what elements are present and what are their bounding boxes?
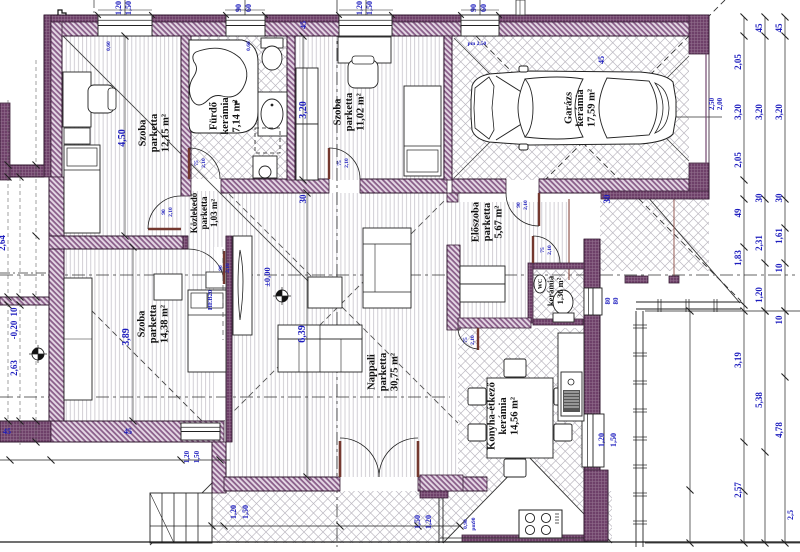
svg-text:1,20: 1,20	[183, 450, 191, 463]
svg-text:Előszoba: Előszoba	[471, 201, 482, 242]
svg-text:10: 10	[774, 315, 784, 325]
svg-text:1,50: 1,50	[413, 515, 422, 529]
svg-text:90: 90	[218, 265, 224, 271]
svg-text:7,14 m²: 7,14 m²	[232, 100, 243, 133]
svg-text:10: 10	[774, 263, 784, 273]
svg-text:45: 45	[3, 427, 11, 436]
svg-text:6,39: 6,39	[297, 325, 308, 343]
svg-text:75: 75	[194, 160, 200, 166]
svg-text:2,05: 2,05	[733, 152, 743, 168]
svg-text:1,83: 1,83	[733, 250, 743, 266]
svg-text:5,67 m²: 5,67 m²	[494, 206, 505, 239]
svg-text:Fürdő: Fürdő	[209, 102, 220, 130]
svg-text:2,10: 2,10	[225, 263, 231, 273]
svg-text:4,50: 4,50	[117, 129, 128, 147]
svg-text:±0,00: ±0,00	[262, 267, 272, 287]
svg-text:Szoba: Szoba	[333, 98, 344, 126]
svg-text:parketta: parketta	[148, 304, 159, 343]
svg-text:2,10: 2,10	[168, 207, 174, 217]
svg-text:11,02 m²: 11,02 m²	[356, 93, 367, 131]
svg-text:1,20: 1,20	[229, 505, 238, 519]
svg-text:1,50: 1,50	[241, 505, 250, 519]
svg-text:Közlekedő: Közlekedő	[189, 192, 199, 233]
svg-text:WC: WC	[538, 279, 544, 289]
svg-text:1,36 m²: 1,36 m²	[555, 277, 565, 304]
svg-text:90: 90	[469, 4, 478, 12]
svg-text:30: 30	[602, 194, 612, 204]
svg-text:3,19: 3,19	[733, 352, 743, 368]
svg-text:2,50: 2,50	[708, 97, 716, 110]
svg-text:1,20: 1,20	[424, 515, 433, 529]
svg-text:2,10: 2,10	[547, 245, 553, 255]
svg-text:1,20: 1,20	[355, 1, 364, 15]
svg-text:49: 49	[733, 208, 743, 218]
svg-text:3,20: 3,20	[774, 104, 784, 120]
svg-text:14,56 m²: 14,56 m²	[510, 397, 521, 435]
svg-text:parketta: parketta	[378, 352, 389, 391]
svg-text:0,60: 0,60	[246, 41, 252, 51]
svg-text:3,89: 3,89	[121, 328, 132, 346]
svg-text:0,60: 0,60	[106, 41, 112, 51]
svg-text:2,5: 2,5	[786, 510, 795, 520]
svg-text:75: 75	[463, 337, 469, 343]
svg-text:1,03 m²: 1,03 m²	[209, 199, 219, 227]
svg-text:2,64: 2,64	[0, 235, 7, 251]
svg-text:1,50: 1,50	[124, 1, 133, 15]
svg-text:45: 45	[597, 56, 606, 64]
svg-text:2,57: 2,57	[733, 482, 743, 498]
svg-text:12,15 m²: 12,15 m²	[161, 114, 172, 152]
svg-text:90: 90	[234, 4, 243, 12]
svg-text:45: 45	[774, 23, 784, 33]
svg-text:2,31: 2,31	[754, 235, 764, 251]
svg-text:Szoba: Szoba	[137, 310, 148, 338]
svg-text:2,10: 2,10	[523, 200, 529, 210]
svg-text:75: 75	[540, 247, 546, 253]
svg-text:2,10: 2,10	[470, 335, 476, 345]
svg-text:HEB20: HEB20	[207, 290, 214, 310]
svg-text:parketta: parketta	[199, 196, 209, 229]
svg-text:1,61: 1,61	[774, 228, 784, 244]
svg-text:80: 80	[604, 297, 612, 305]
svg-text:Garázs: Garázs	[564, 92, 575, 124]
svg-text:30,75 m²: 30,75 m²	[390, 353, 401, 391]
svg-text:45: 45	[754, 23, 764, 33]
svg-text:1,20: 1,20	[597, 433, 606, 447]
svg-text:parketta: parketta	[482, 202, 493, 241]
svg-text:90: 90	[161, 209, 167, 215]
svg-text:parketta: parketta	[344, 92, 355, 131]
svg-text:30: 30	[774, 193, 784, 203]
svg-text:80: 80	[612, 297, 620, 305]
svg-text:2,63: 2,63	[9, 360, 19, 376]
svg-text:1,50: 1,50	[193, 450, 201, 463]
svg-text:90: 90	[516, 202, 522, 208]
svg-text:kerámia: kerámia	[545, 275, 555, 306]
svg-text:45: 45	[299, 21, 308, 29]
svg-text:Nappali: Nappali	[367, 354, 378, 390]
svg-text:60: 60	[244, 4, 253, 12]
svg-text:2,05: 2,05	[733, 54, 743, 70]
svg-text:kerámia: kerámia	[575, 89, 586, 127]
svg-text:parketta: parketta	[149, 113, 160, 152]
svg-text:3,20: 3,20	[754, 104, 764, 120]
svg-text:Konyha-étkező: Konyha-étkező	[487, 382, 498, 450]
svg-text:1,50: 1,50	[609, 433, 618, 447]
svg-text:2,10: 2,10	[201, 158, 207, 168]
svg-text:3,20: 3,20	[733, 104, 743, 120]
svg-text:45: 45	[124, 427, 132, 436]
svg-text:kerámia: kerámia	[498, 397, 509, 435]
svg-text:3,20: 3,20	[298, 101, 309, 119]
svg-text:60: 60	[479, 4, 488, 12]
svg-text:pm90: pm90	[471, 517, 477, 530]
svg-text:pm 2,50: pm 2,50	[468, 41, 487, 47]
svg-text:kerámia: kerámia	[220, 97, 231, 135]
svg-text:1,20: 1,20	[754, 287, 764, 303]
svg-text:17,59 m²: 17,59 m²	[587, 89, 598, 127]
svg-text:10: 10	[9, 307, 19, 317]
svg-text:2,00: 2,00	[716, 97, 724, 110]
svg-text:30: 30	[754, 193, 764, 203]
svg-text:0,90: 0,90	[463, 519, 469, 529]
svg-text:1,50: 1,50	[365, 1, 374, 15]
svg-text:75: 75	[337, 160, 343, 166]
svg-text:14,38 m²: 14,38 m²	[160, 305, 171, 343]
svg-text:Szoba: Szoba	[138, 119, 149, 147]
svg-text:2,10: 2,10	[344, 158, 350, 168]
svg-text:-0,20: -0,20	[9, 320, 19, 339]
svg-text:5,38: 5,38	[754, 392, 764, 408]
svg-text:4,78: 4,78	[774, 422, 784, 438]
svg-text:30: 30	[298, 194, 308, 204]
svg-text:1,20: 1,20	[114, 1, 123, 15]
